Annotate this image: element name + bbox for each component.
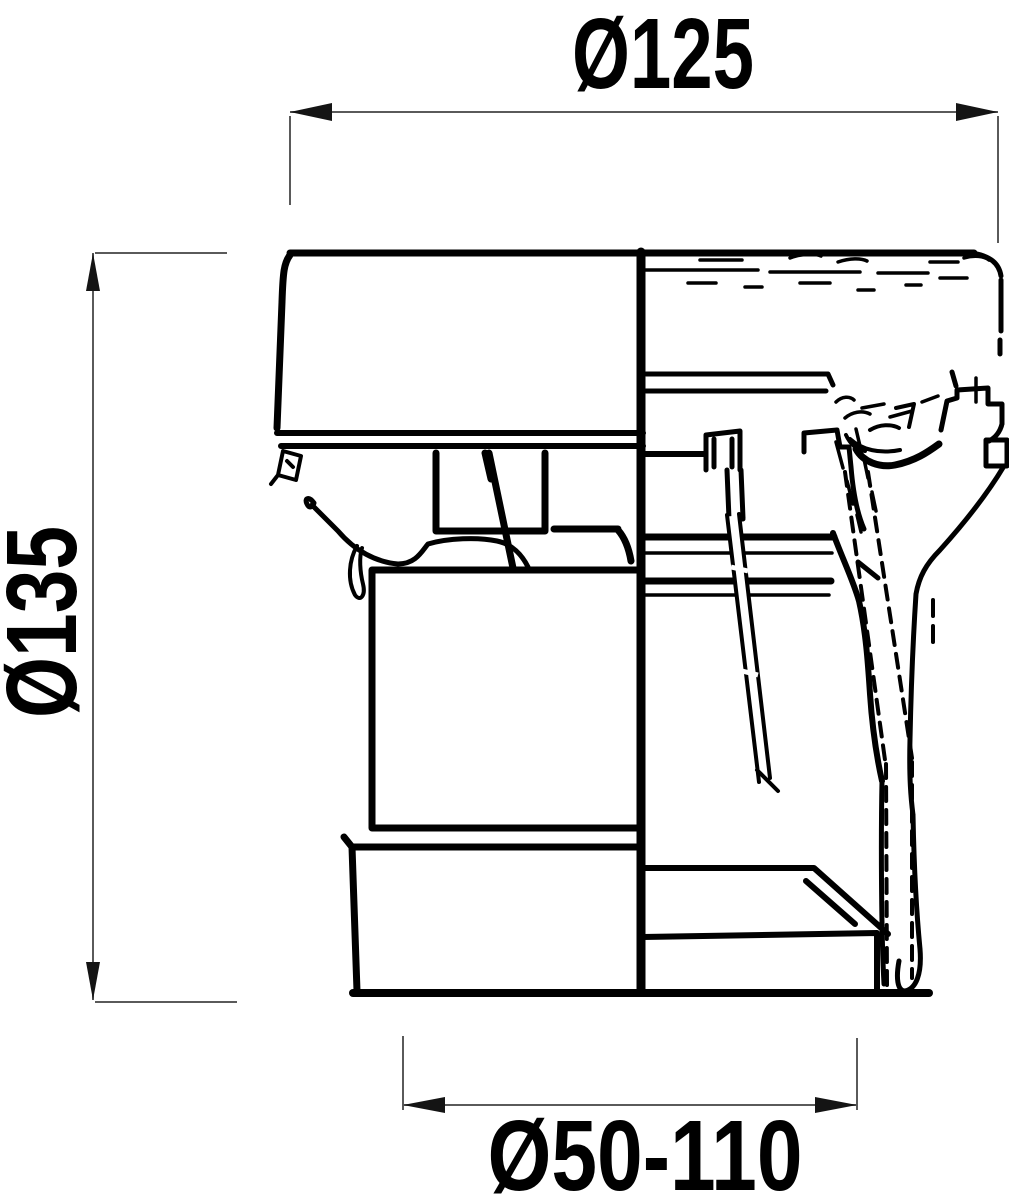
lower-step-lines xyxy=(643,868,888,991)
hood-top-sketch-lines xyxy=(643,254,989,290)
rim-left-bracket xyxy=(271,451,301,484)
funnel-right-edge xyxy=(910,466,1004,815)
dimension-left-arrow-down-icon xyxy=(86,962,100,1000)
dimension-bottom-arrow-right-icon xyxy=(815,1097,857,1113)
vent-exterior-view xyxy=(271,253,974,993)
strap-core xyxy=(732,516,763,780)
dimension-top-arrow-right-icon xyxy=(956,103,998,121)
drip-hook xyxy=(350,546,364,598)
base-outline xyxy=(344,837,640,991)
dimension-bottom-label: Ø50-110 xyxy=(488,1100,803,1200)
technical-drawing-canvas: Ø125 Ø135 Ø50-110 xyxy=(0,0,1009,1200)
vent-section-view xyxy=(641,252,1007,992)
hanger-clip xyxy=(706,431,743,519)
dimension-bottom-arrow-left-icon xyxy=(403,1097,445,1113)
dimension-top-label: Ø125 xyxy=(572,0,754,110)
dimension-left-lines xyxy=(93,253,237,1002)
right-stepped-bracket xyxy=(941,372,1007,466)
inner-ceiling-lines xyxy=(646,374,833,391)
hood-right-corner xyxy=(972,253,1001,354)
under-rim-struts xyxy=(436,453,631,568)
dimension-bottom-lines xyxy=(403,1036,857,1110)
body-outline xyxy=(372,570,640,828)
dimension-top-lines xyxy=(290,112,998,243)
dimension-left: Ø135 xyxy=(0,253,237,1002)
dimension-top: Ø125 xyxy=(290,0,998,243)
hood-outline xyxy=(277,253,974,428)
dimension-left-arrow-up-icon xyxy=(86,253,100,291)
drawing-sheet: Ø125 Ø135 Ø50-110 xyxy=(0,0,1009,1200)
dimension-top-arrow-left-icon xyxy=(290,103,332,121)
dimension-bottom: Ø50-110 xyxy=(403,1036,857,1200)
dimension-left-label: Ø135 xyxy=(0,526,98,718)
